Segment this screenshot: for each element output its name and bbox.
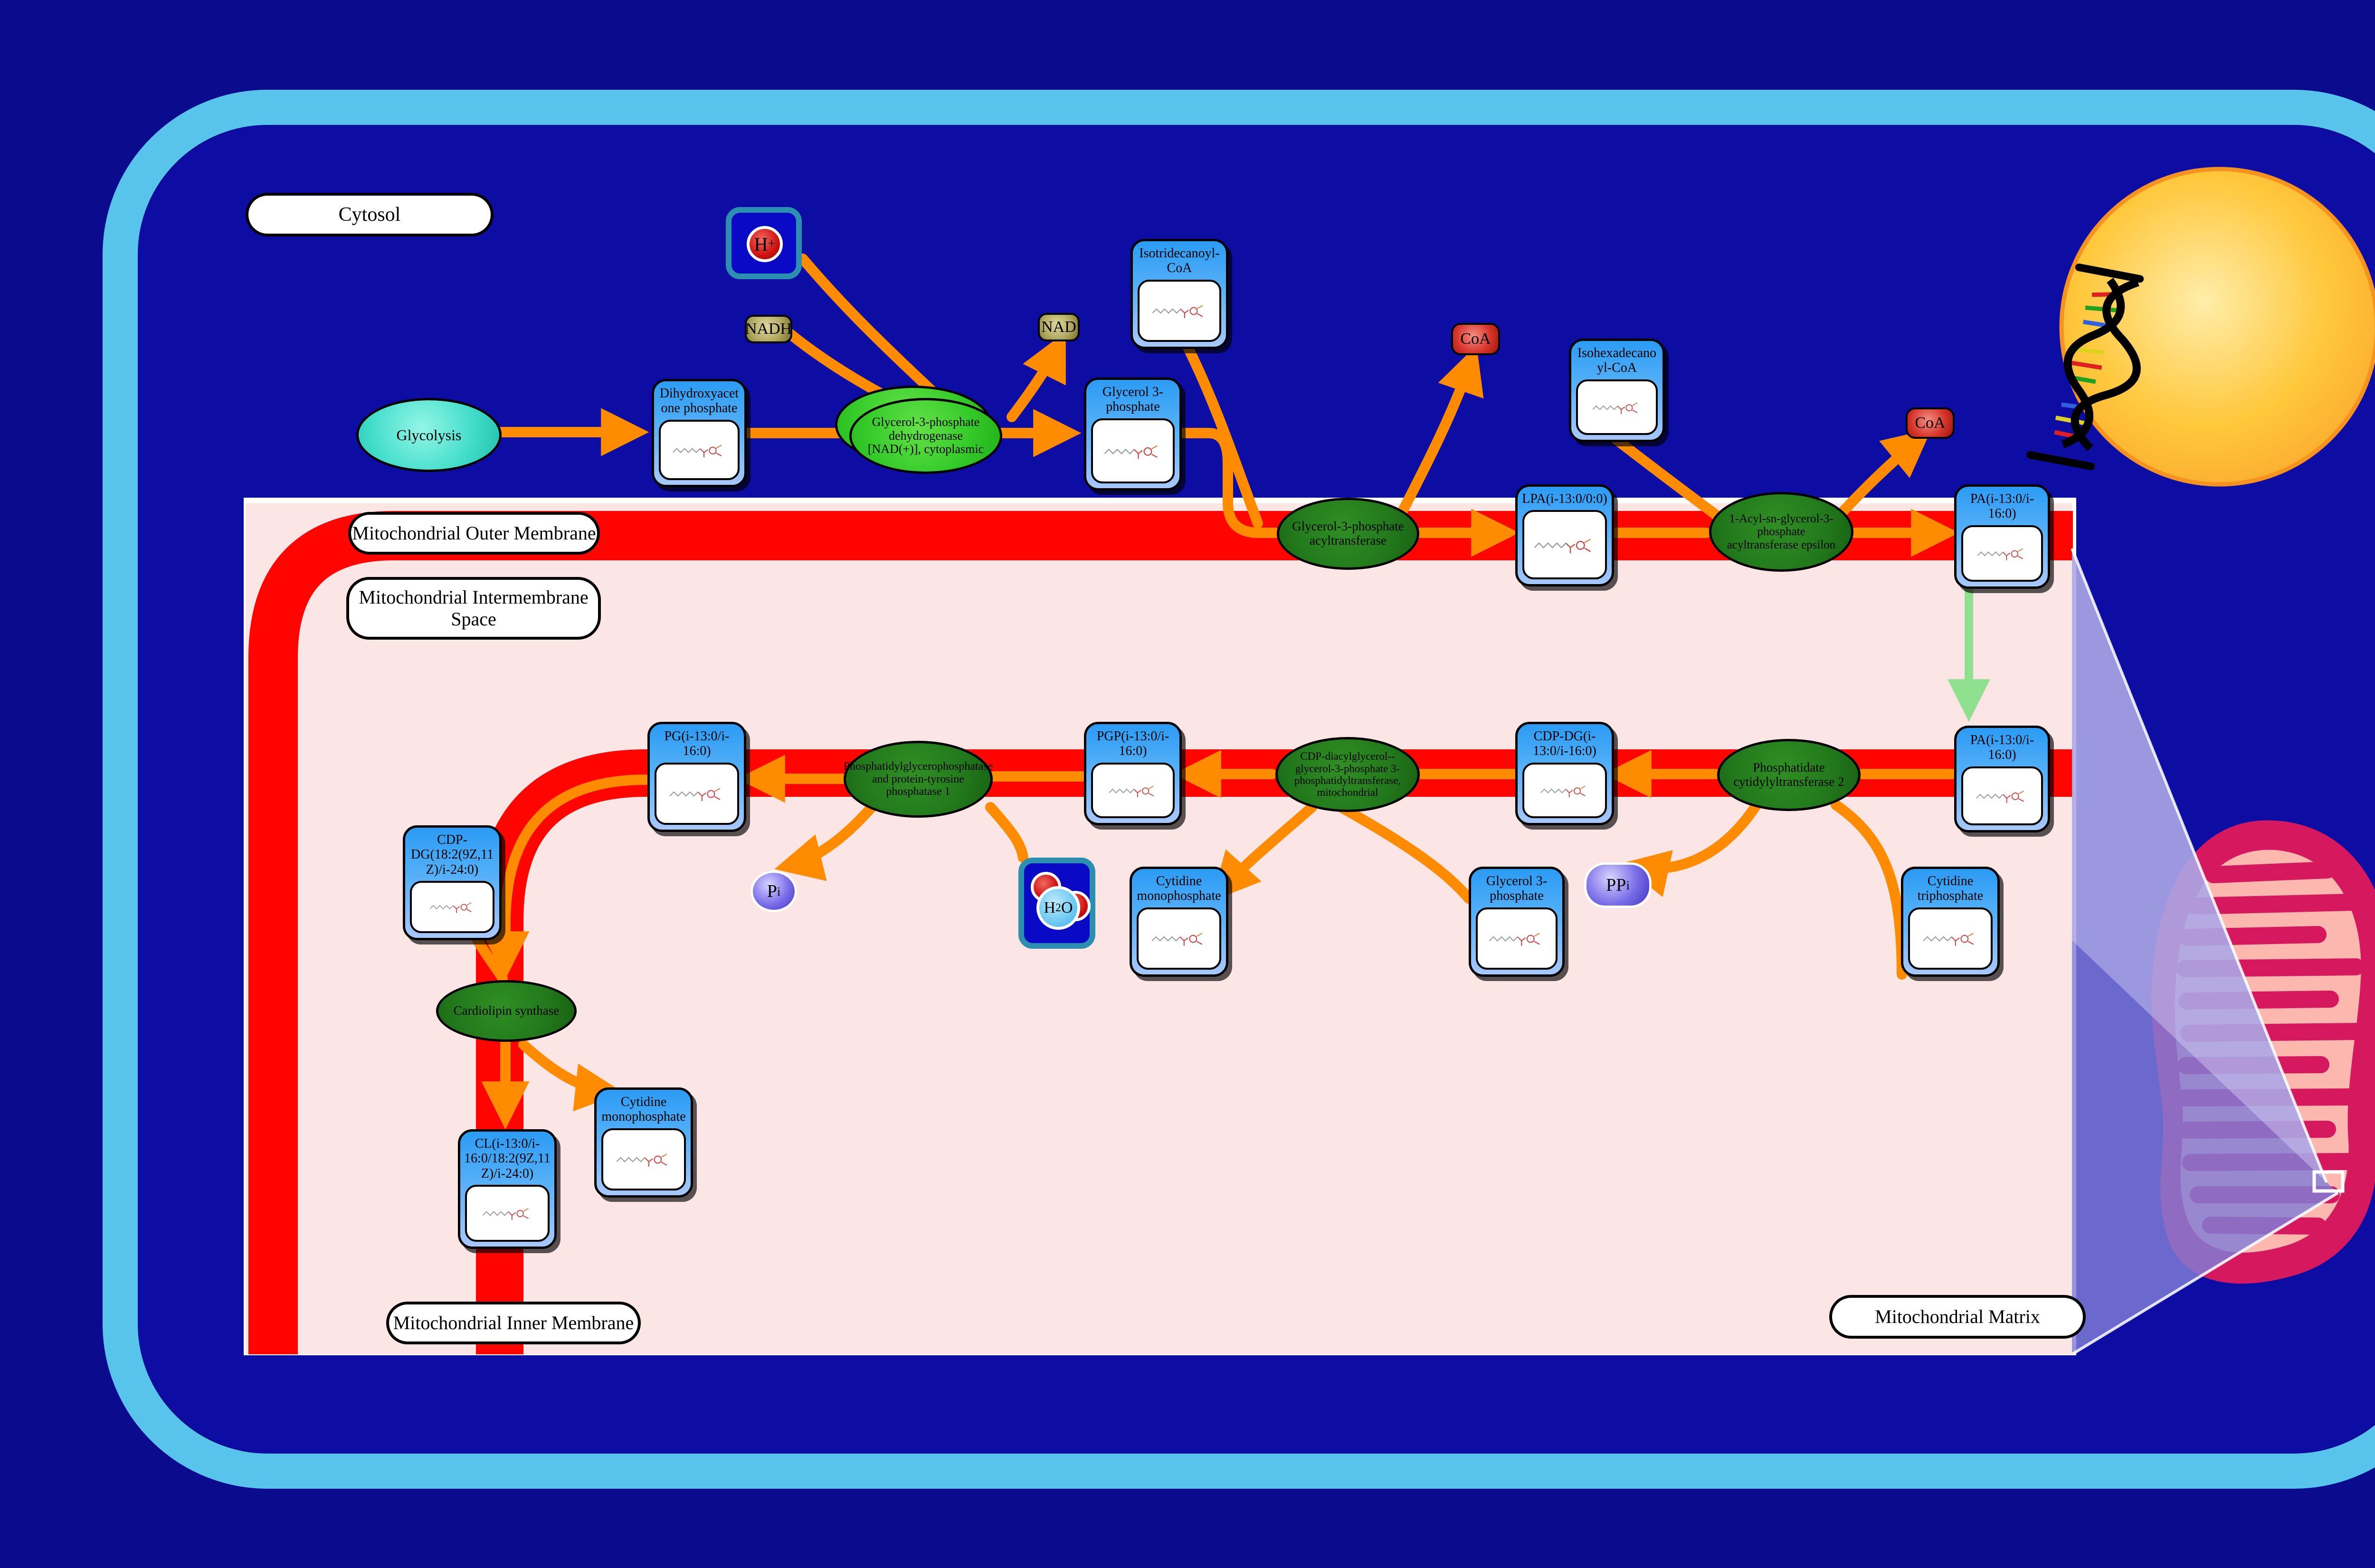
node-cdp-dg-1[interactable]: CDP-DG(i-13:0/i-16:0) <box>1515 722 1614 825</box>
node-isohexadecanoyl-coa[interactable]: Isohexadecanoyl-CoA <box>1569 339 1665 442</box>
pathway-canvas: Cytosol Mitochondrial Outer Membrane Mit… <box>0 0 2375 1568</box>
enzyme-cardiolipin-synthase[interactable]: Cardiolipin synthase <box>436 980 577 1042</box>
node-glycerol-3-phosphate-matrix[interactable]: Glycerol 3-phosphate <box>1469 867 1565 977</box>
node-ctp[interactable]: Cytidine triphosphate <box>1901 867 2000 977</box>
chemical-structure <box>1091 418 1175 483</box>
node-glycerol-3-phosphate-cytosol[interactable]: Glycerol 3-phosphate <box>1084 378 1182 491</box>
chemical-structure <box>1522 763 1607 818</box>
chemical-structure <box>1476 907 1558 970</box>
label-matrix: Mitochondrial Matrix <box>1829 1295 2086 1339</box>
label-intermembrane-space: Mitochondrial Intermembrane Space <box>346 577 601 640</box>
enzyme-ptpmt1[interactable]: Phosphatidylglycerophosphatase and prote… <box>844 741 993 818</box>
chemical-structure <box>1138 280 1221 342</box>
chemical-structure <box>465 1185 550 1242</box>
badge-ppi[interactable]: PPi <box>1584 862 1652 908</box>
node-pa-outer[interactable]: PA(i-13:0/i-16:0) <box>1954 484 2050 589</box>
enzyme-gpd1[interactable]: Glycerol-3-phosphate dehydrogenase [NAD(… <box>849 398 1002 474</box>
badge-nad[interactable]: NAD <box>1038 313 1080 341</box>
node-glycolysis[interactable]: Glycolysis <box>356 398 502 472</box>
chemical-structure <box>1137 907 1221 970</box>
chemical-structure <box>410 881 494 933</box>
chemical-structure <box>1961 766 2043 825</box>
label-cytosol: Cytosol <box>246 193 494 236</box>
node-isotridecanoyl-coa[interactable]: Isotridecanoyl-CoA <box>1130 239 1228 349</box>
enzyme-cds2[interactable]: Phosphatidate cytidylyltransferase 2 <box>1717 739 1861 811</box>
badge-pi[interactable]: Pi <box>750 870 797 912</box>
badge-nadh[interactable]: NADH <box>745 315 792 343</box>
badge-coa-1[interactable]: CoA <box>1451 323 1500 355</box>
node-cmp-mid[interactable]: Cytidine monophosphate <box>1130 867 1228 977</box>
chemical-structure <box>1576 379 1658 435</box>
node-cardiolipin[interactable]: CL(i-13:0/i-16:0/18:2(9Z,11Z)/i-24:0) <box>458 1129 557 1249</box>
label-outer-membrane: Mitochondrial Outer Membrane <box>348 512 600 555</box>
enzyme-gpat[interactable]: Glycerol-3-phosphate acyltransferase <box>1277 498 1419 570</box>
badge-h-plus[interactable]: H+ <box>726 207 802 279</box>
chemical-structure <box>1908 907 1993 970</box>
chemical-structure <box>1522 510 1607 579</box>
node-pg[interactable]: PG(i-13:0/i-16:0) <box>647 722 746 832</box>
chemical-structure <box>601 1128 686 1190</box>
badge-h2o[interactable]: H2O <box>1018 858 1095 949</box>
enzyme-pgs1[interactable]: CDP-diacylglycerol--glycerol-3-phosphate… <box>1275 737 1420 812</box>
node-lpa[interactable]: LPA(i-13:0/0:0) <box>1515 484 1614 586</box>
chemical-structure <box>1961 525 2043 582</box>
label-inner-membrane: Mitochondrial Inner Membrane <box>386 1302 641 1344</box>
chemical-structure <box>659 420 740 480</box>
node-pa-inner[interactable]: PA(i-13:0/i-16:0) <box>1954 726 2050 832</box>
node-cdp-dg-2[interactable]: CDP-DG(18:2(9Z,11Z)/i-24:0) <box>403 825 502 940</box>
node-pgp[interactable]: PGP(i-13:0/i-16:0) <box>1084 722 1182 825</box>
node-dihydroxyacetone-phosphate[interactable]: Dihydroxyacetone phosphate <box>652 379 747 487</box>
proton-icon: H+ <box>747 226 783 262</box>
water-molecule-icon: H2O <box>1036 886 1080 930</box>
chemical-structure <box>1091 763 1175 818</box>
enzyme-agpat-epsilon[interactable]: 1-Acyl-sn-glycerol-3-phosphate acyltrans… <box>1709 492 1853 572</box>
badge-coa-2[interactable]: CoA <box>1906 407 1955 439</box>
node-cmp-lower[interactable]: Cytidine monophosphate <box>594 1087 693 1198</box>
chemical-structure <box>655 763 739 825</box>
